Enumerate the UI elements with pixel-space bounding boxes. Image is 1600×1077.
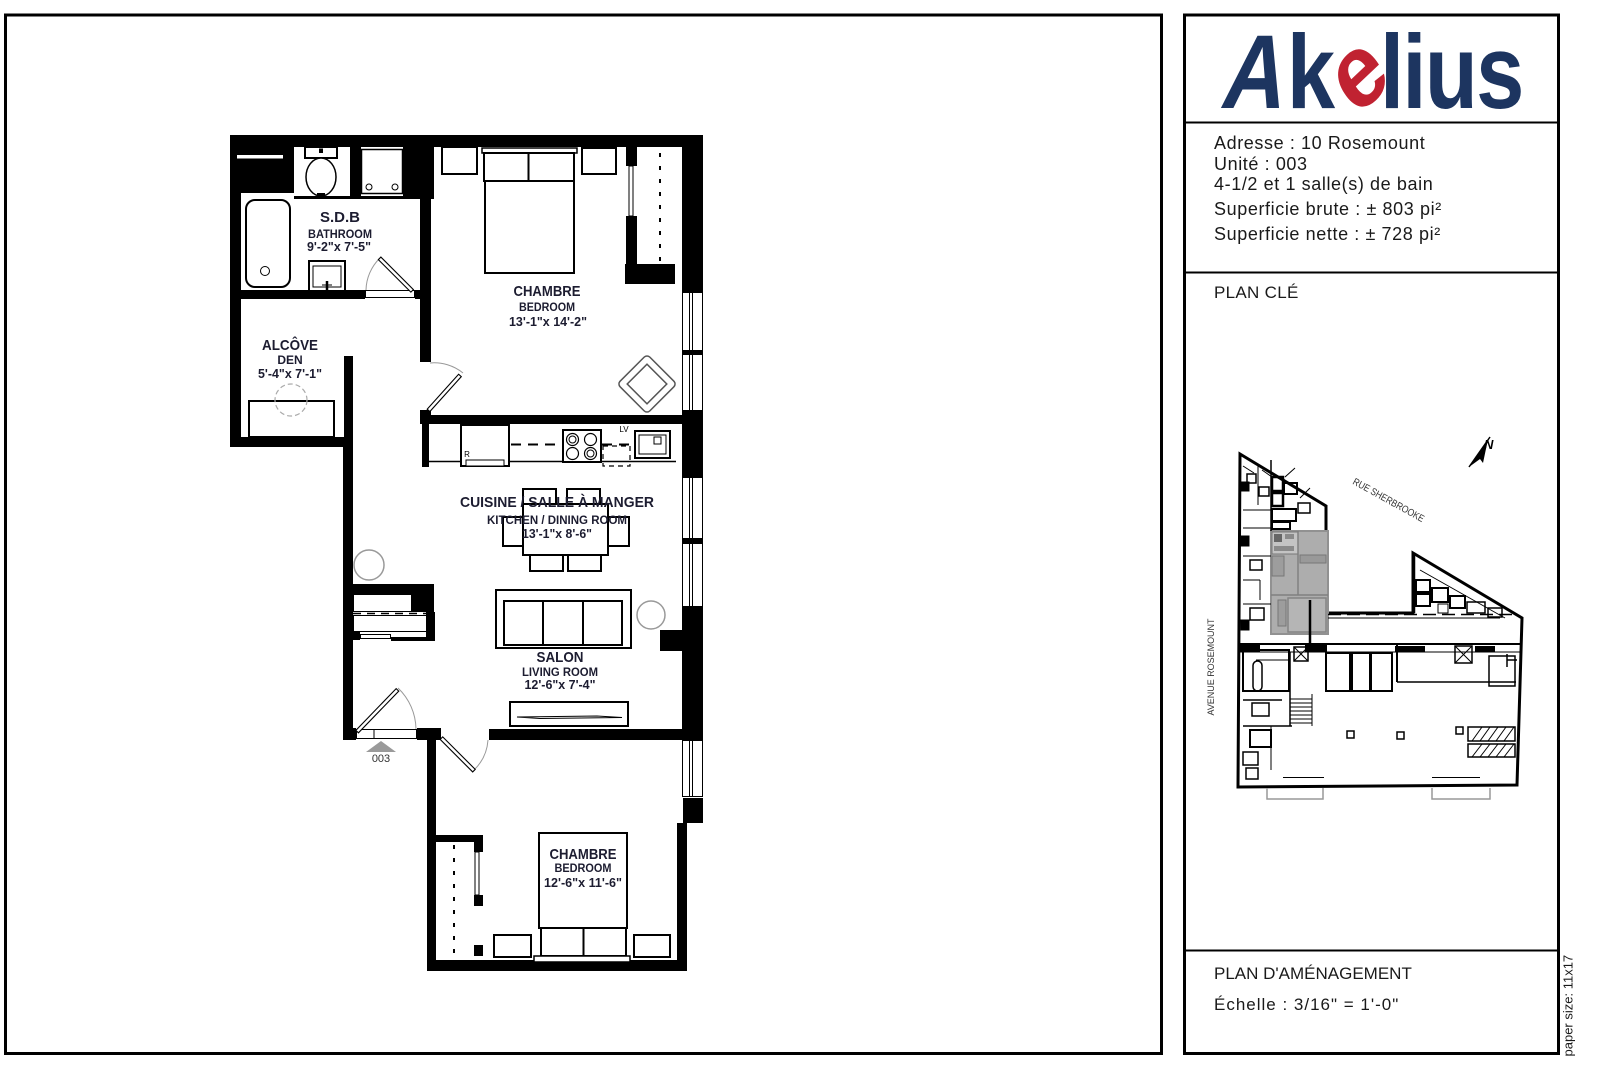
svg-text:003: 003 — [372, 753, 390, 765]
svg-text:13'-1"x 8'-6": 13'-1"x 8'-6" — [522, 526, 592, 541]
svg-text:R: R — [464, 450, 470, 459]
svg-text:12'-6"x 11'-6": 12'-6"x 11'-6" — [544, 875, 622, 890]
svg-text:DEN: DEN — [277, 353, 302, 367]
svg-text:LV: LV — [619, 425, 629, 434]
svg-text:KITCHEN / DINING ROOM: KITCHEN / DINING ROOM — [487, 513, 627, 527]
svg-text:SALON: SALON — [537, 649, 584, 666]
svg-text:BEDROOM: BEDROOM — [555, 861, 612, 875]
svg-text:CHAMBRE: CHAMBRE — [514, 283, 581, 300]
svg-text:13'-1"x 14'-2": 13'-1"x 14'-2" — [509, 314, 587, 329]
svg-text:S.D.B: S.D.B — [320, 209, 360, 226]
svg-text:9'-2"x 7'-5": 9'-2"x 7'-5" — [307, 239, 371, 254]
svg-text:12'-6"x 7'-4": 12'-6"x 7'-4" — [525, 677, 596, 692]
svg-text:AVENUE ROSEMOUNT: AVENUE ROSEMOUNT — [1206, 618, 1217, 715]
svg-text:N: N — [1484, 437, 1494, 452]
svg-text:BEDROOM: BEDROOM — [519, 300, 575, 314]
svg-text:RUE SHERBROOKE: RUE SHERBROOKE — [1351, 477, 1427, 526]
svg-text:5'-4"x 7'-1": 5'-4"x 7'-1" — [258, 366, 322, 381]
svg-text:CUISINE / SALLE À MANGER: CUISINE / SALLE À MANGER — [460, 494, 654, 511]
svg-text:ALCÔVE: ALCÔVE — [262, 336, 318, 354]
